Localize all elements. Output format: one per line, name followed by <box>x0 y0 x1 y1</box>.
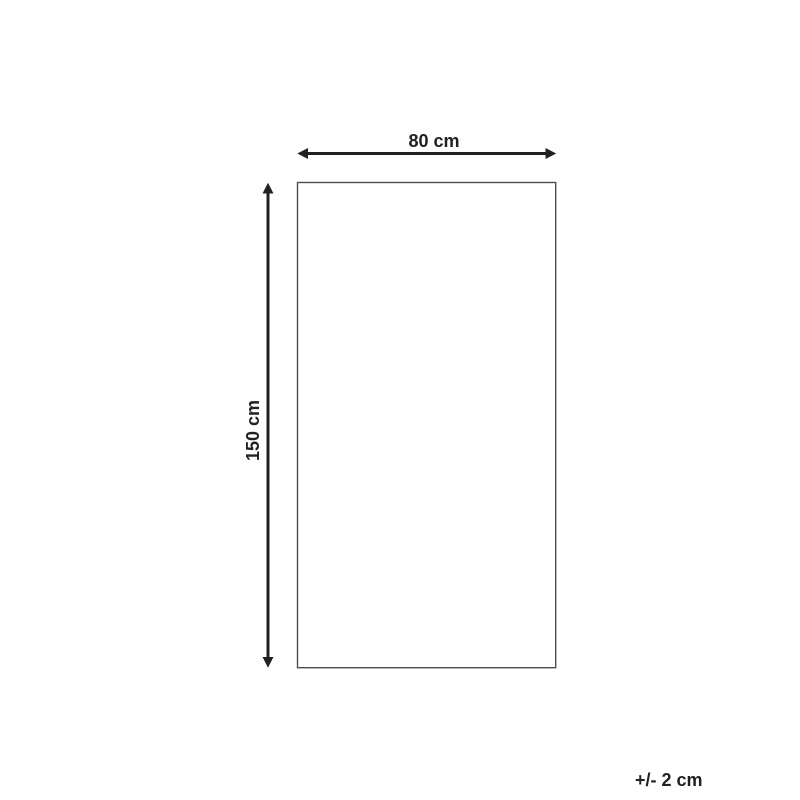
svg-text:150 cm: 150 cm <box>243 400 263 461</box>
svg-text:+/- 2 cm: +/- 2 cm <box>635 770 703 790</box>
svg-text:80 cm: 80 cm <box>408 131 459 151</box>
